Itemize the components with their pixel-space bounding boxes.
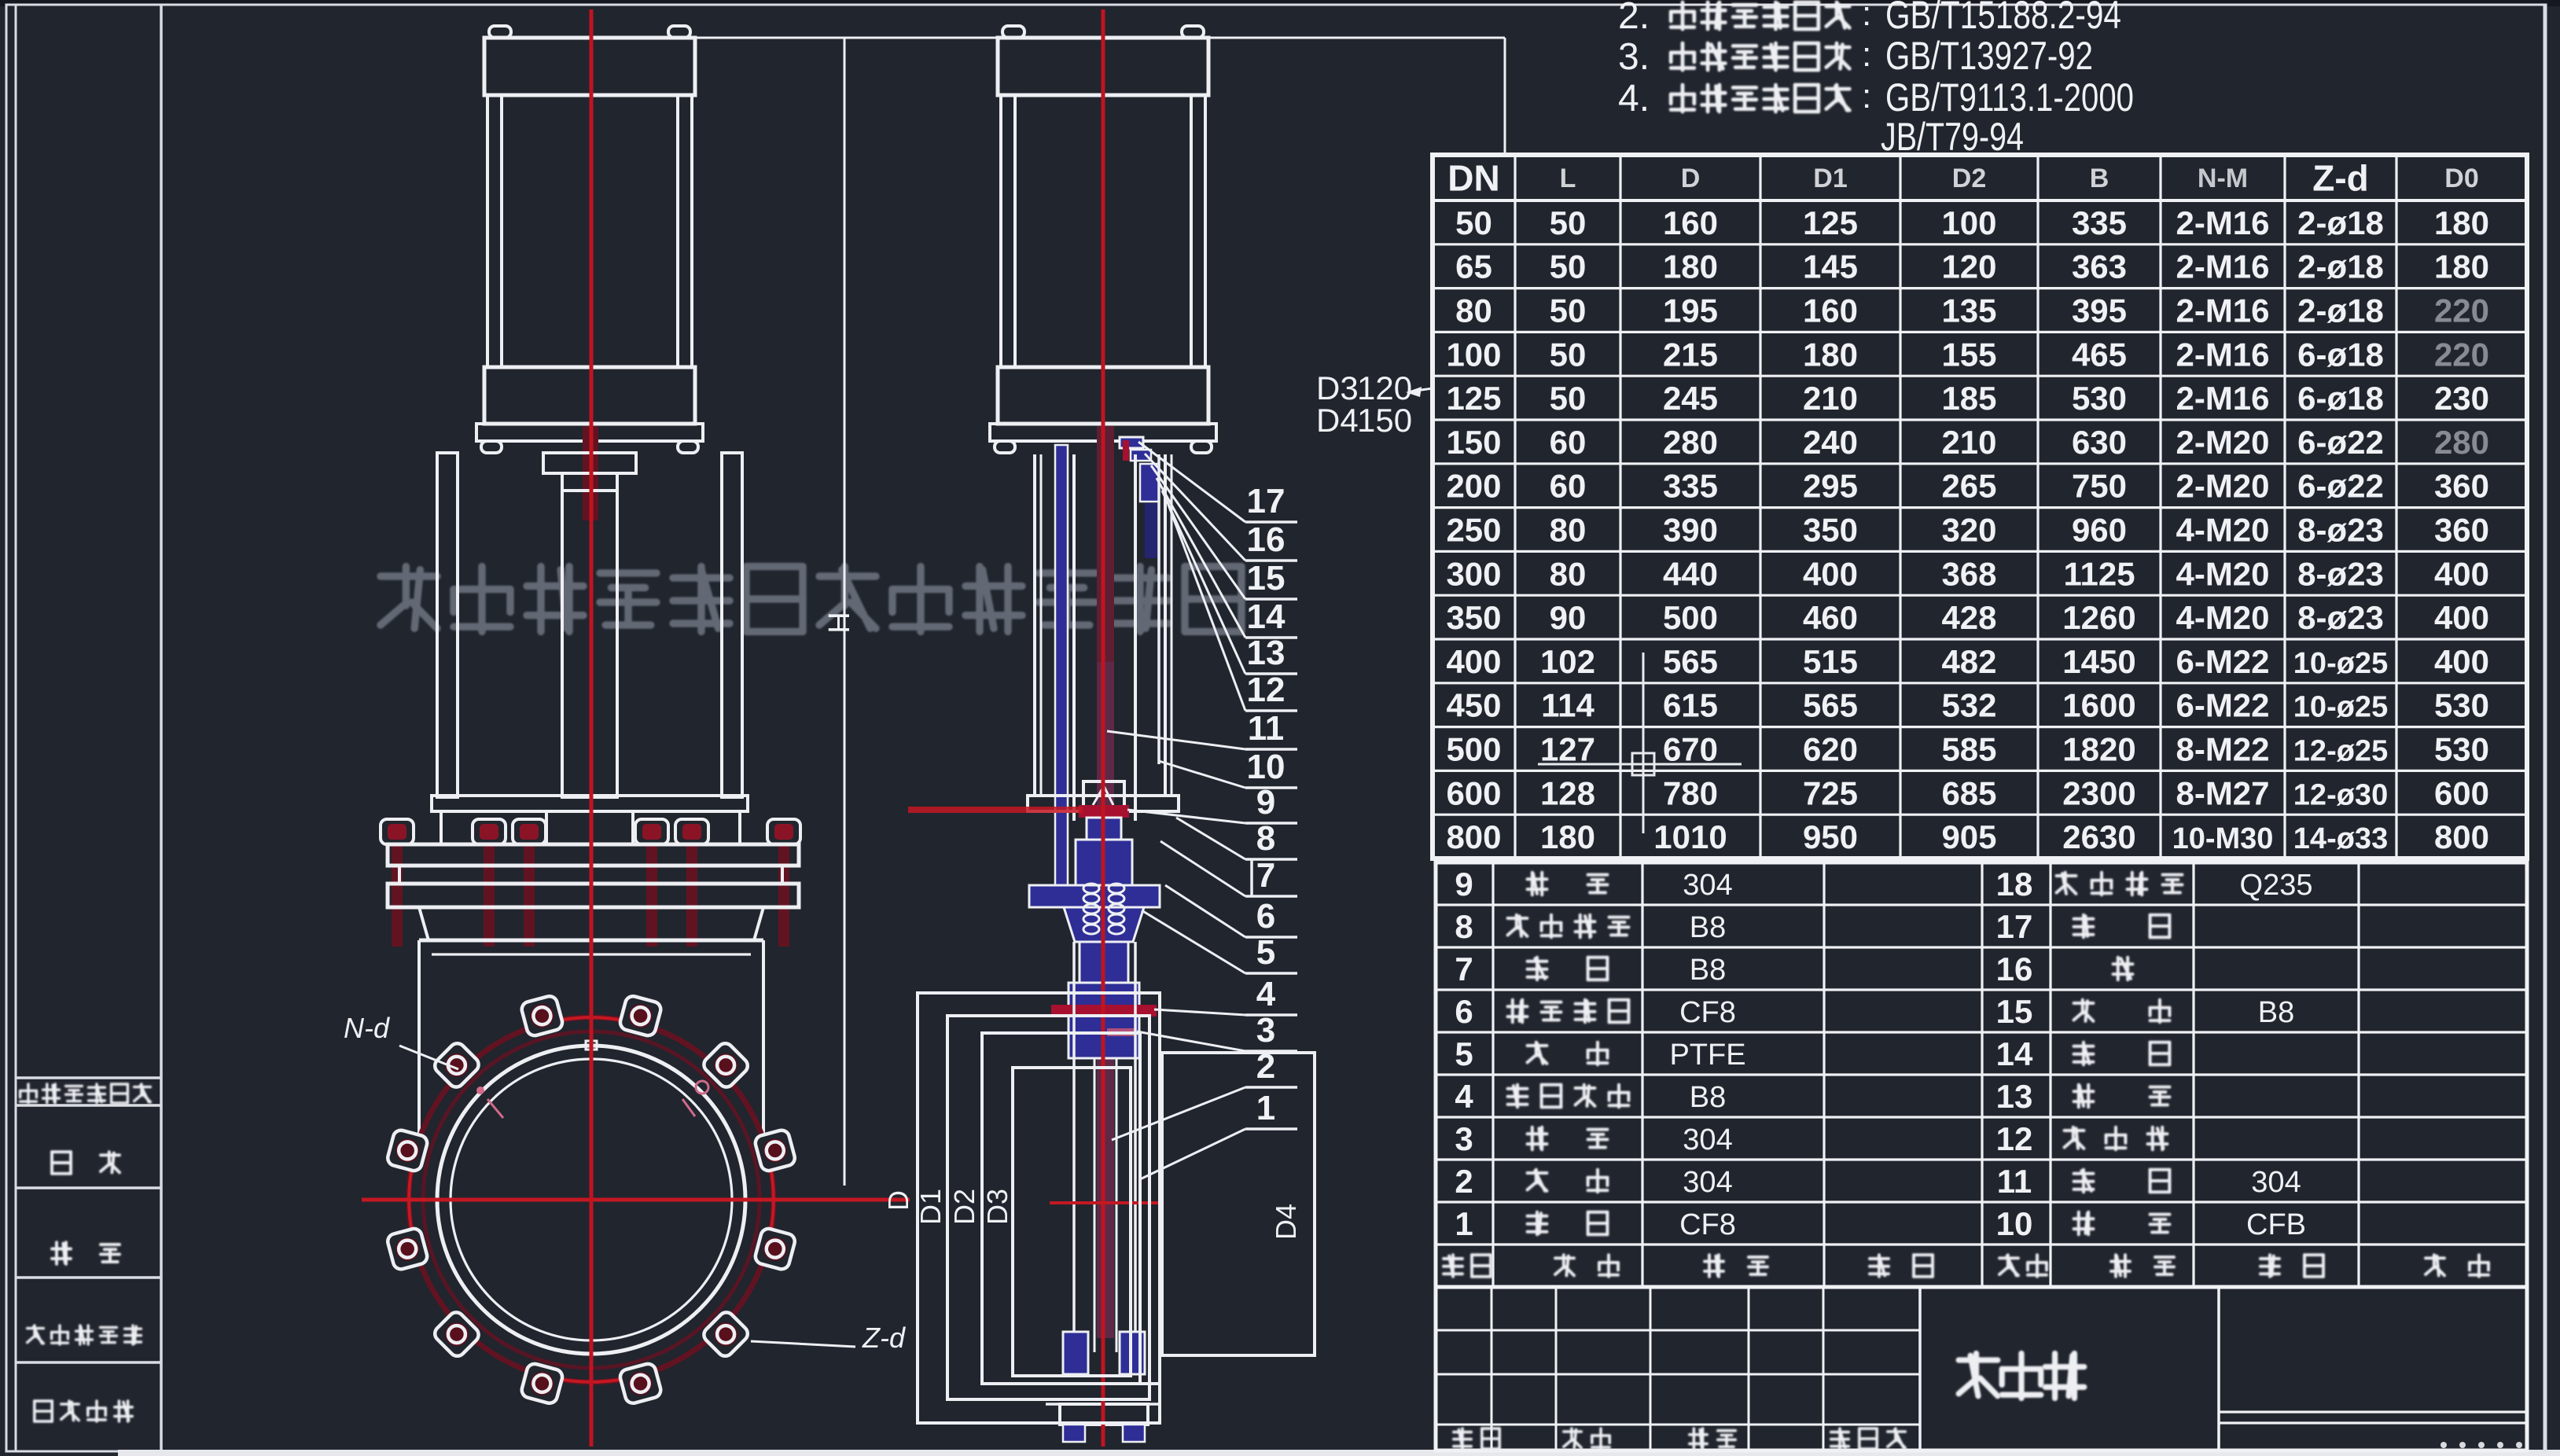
svg-text:400: 400 [1446, 643, 1501, 680]
svg-text:8-ø23: 8-ø23 [2297, 512, 2384, 549]
svg-text:350: 350 [1803, 512, 1858, 549]
svg-text:2-M16: 2-M16 [2176, 248, 2269, 285]
svg-text:220: 220 [2434, 292, 2489, 329]
svg-text:215: 215 [1663, 336, 1718, 373]
svg-text:265: 265 [1941, 468, 1996, 505]
svg-text:180: 180 [1540, 818, 1595, 855]
svg-text:1010: 1010 [1653, 818, 1727, 855]
svg-text:400: 400 [2434, 643, 2489, 680]
svg-text:2-M16: 2-M16 [2176, 292, 2269, 329]
svg-text:565: 565 [1663, 643, 1718, 680]
svg-text:135: 135 [1941, 292, 1996, 329]
svg-text:335: 335 [1663, 468, 1718, 505]
svg-text:4: 4 [1455, 1078, 1473, 1115]
svg-text:50: 50 [1550, 204, 1587, 241]
svg-text:685: 685 [1941, 774, 1996, 811]
svg-text:780: 780 [1663, 774, 1718, 811]
svg-text:D2: D2 [1952, 164, 1986, 193]
svg-text:10-ø25: 10-ø25 [2293, 691, 2388, 724]
svg-text:120: 120 [1941, 248, 1996, 285]
svg-text:Q235: Q235 [2240, 869, 2313, 902]
svg-text:1260: 1260 [2062, 599, 2135, 636]
svg-text:80: 80 [1455, 292, 1492, 329]
svg-text:1450: 1450 [2062, 643, 2135, 680]
svg-text:127: 127 [1540, 731, 1595, 768]
svg-text:6-M22: 6-M22 [2176, 643, 2269, 680]
svg-text:6-M22: 6-M22 [2176, 687, 2269, 724]
svg-text:80: 80 [1550, 512, 1587, 549]
svg-text:2-M16: 2-M16 [2176, 336, 2269, 373]
svg-text:18: 18 [1996, 866, 2033, 903]
svg-text:250: 250 [1446, 512, 1501, 549]
svg-text:2-ø18: 2-ø18 [2297, 248, 2384, 285]
svg-text:2300: 2300 [2062, 774, 2135, 811]
svg-text:145: 145 [1803, 248, 1858, 285]
svg-text:8-ø23: 8-ø23 [2297, 599, 2384, 636]
svg-text:D2: D2 [948, 1189, 980, 1225]
svg-text:1: 1 [1455, 1205, 1473, 1242]
svg-text:180: 180 [1663, 248, 1718, 285]
svg-text:600: 600 [1446, 774, 1501, 811]
svg-text:JB/T79-94: JB/T79-94 [1881, 115, 2024, 159]
svg-text:2-ø18: 2-ø18 [2297, 292, 2384, 329]
svg-text:50: 50 [1550, 380, 1587, 417]
svg-text:395: 395 [2072, 292, 2127, 329]
svg-text:180: 180 [1803, 336, 1858, 373]
svg-text:50: 50 [1550, 248, 1587, 285]
svg-text:363: 363 [2072, 248, 2127, 285]
svg-text:360: 360 [2434, 512, 2489, 549]
svg-text:8-M27: 8-M27 [2176, 774, 2269, 811]
svg-text:950: 950 [1803, 818, 1858, 855]
svg-text:800: 800 [1446, 818, 1501, 855]
svg-text:515: 515 [1803, 643, 1858, 680]
svg-text:114: 114 [1541, 687, 1594, 724]
svg-text:10-ø25: 10-ø25 [2293, 647, 2388, 680]
svg-text:B8: B8 [1690, 911, 1726, 944]
svg-text:155: 155 [1941, 336, 1996, 373]
svg-text:D4: D4 [1316, 402, 1359, 439]
svg-text:128: 128 [1540, 774, 1595, 811]
svg-text:160: 160 [1663, 204, 1718, 241]
svg-text:630: 630 [2072, 424, 2127, 461]
svg-text:750: 750 [2072, 468, 2127, 505]
svg-text:100: 100 [1941, 204, 1996, 241]
svg-text:7: 7 [1256, 856, 1275, 895]
svg-text:220: 220 [2434, 336, 2489, 373]
svg-text:4.: 4. [1618, 78, 1650, 119]
svg-text:60: 60 [1550, 468, 1587, 505]
svg-text:1820: 1820 [2062, 731, 2135, 768]
svg-text:102: 102 [1540, 643, 1595, 680]
svg-text:8-M22: 8-M22 [2176, 731, 2269, 768]
svg-text:8: 8 [1256, 819, 1275, 858]
svg-text:960: 960 [2072, 512, 2127, 549]
svg-text:GB/T9113.1-2000: GB/T9113.1-2000 [1885, 75, 2134, 119]
svg-text:4: 4 [1256, 975, 1276, 1013]
svg-text:D0: D0 [2444, 164, 2478, 193]
svg-text:4-M20: 4-M20 [2176, 555, 2269, 592]
svg-text:350: 350 [1446, 599, 1501, 636]
svg-text:50: 50 [1550, 292, 1587, 329]
svg-text:620: 620 [1803, 731, 1858, 768]
svg-text:H: H [823, 612, 856, 633]
svg-text:180: 180 [2434, 204, 2489, 241]
svg-text:6: 6 [1256, 897, 1275, 936]
svg-text:12: 12 [1247, 671, 1286, 709]
svg-text:585: 585 [1941, 731, 1996, 768]
svg-text:2-M20: 2-M20 [2176, 468, 2269, 505]
svg-text:2: 2 [1256, 1047, 1275, 1086]
svg-text:13: 13 [1996, 1078, 2033, 1115]
svg-text:670: 670 [1663, 731, 1718, 768]
svg-text:D: D [882, 1190, 914, 1211]
svg-text:240: 240 [1803, 424, 1858, 461]
svg-text:428: 428 [1941, 599, 1996, 636]
svg-text:565: 565 [1803, 687, 1858, 724]
svg-text:14: 14 [1247, 597, 1286, 636]
svg-text:Z-d: Z-d [862, 1322, 906, 1354]
svg-text:PTFE: PTFE [1669, 1039, 1745, 1072]
svg-text:125: 125 [1803, 204, 1858, 241]
svg-text:2630: 2630 [2062, 818, 2135, 855]
svg-text:465: 465 [2072, 336, 2127, 373]
svg-text:7: 7 [1455, 950, 1473, 987]
svg-text:12-ø25: 12-ø25 [2293, 735, 2388, 768]
svg-text:65: 65 [1455, 248, 1492, 285]
svg-text:304: 304 [2251, 1166, 2301, 1199]
svg-text:1125: 1125 [2063, 555, 2135, 592]
svg-text:80: 80 [1550, 555, 1587, 592]
svg-text:L: L [1560, 164, 1576, 193]
svg-text:300: 300 [1446, 555, 1501, 592]
svg-text:400: 400 [2434, 555, 2489, 592]
svg-text:100: 100 [1446, 336, 1501, 373]
svg-text:11: 11 [1248, 709, 1285, 748]
svg-text:5: 5 [1256, 933, 1275, 972]
svg-text:245: 245 [1663, 380, 1718, 417]
svg-text:185: 185 [1941, 380, 1996, 417]
svg-text:125: 125 [1446, 380, 1501, 417]
svg-text:3.: 3. [1618, 36, 1650, 78]
svg-text:210: 210 [1941, 424, 1996, 461]
svg-text:D3: D3 [981, 1189, 1013, 1225]
svg-text:905: 905 [1941, 818, 1996, 855]
svg-text:B8: B8 [1690, 1081, 1726, 1114]
svg-text:D: D [1681, 164, 1701, 193]
svg-text:150: 150 [1357, 402, 1412, 439]
svg-text:4-M20: 4-M20 [2176, 512, 2269, 549]
svg-text:368: 368 [1941, 555, 1996, 592]
svg-text:6-ø22: 6-ø22 [2297, 424, 2384, 461]
svg-text:320: 320 [1941, 512, 1996, 549]
svg-text::: : [1862, 35, 1871, 74]
svg-text:B8: B8 [1690, 954, 1726, 987]
svg-text:482: 482 [1941, 643, 1996, 680]
svg-text:160: 160 [1803, 292, 1858, 329]
svg-text:16: 16 [1996, 950, 2033, 987]
svg-text:D4: D4 [1270, 1204, 1302, 1240]
svg-text:10-M30: 10-M30 [2172, 822, 2274, 855]
svg-text:6: 6 [1455, 993, 1473, 1030]
svg-text:6-ø18: 6-ø18 [2297, 380, 2384, 417]
svg-text:11: 11 [1997, 1163, 2032, 1200]
svg-text:2-M16: 2-M16 [2176, 204, 2269, 241]
svg-text:GB/T13927-92: GB/T13927-92 [1885, 34, 2093, 78]
svg-text:N-M: N-M [2198, 164, 2248, 193]
svg-text:D3: D3 [1316, 370, 1359, 406]
svg-text:10: 10 [1247, 748, 1286, 786]
svg-text:50: 50 [1550, 336, 1587, 373]
svg-text:200: 200 [1446, 468, 1501, 505]
svg-text:90: 90 [1550, 599, 1587, 636]
svg-text:17: 17 [1996, 908, 2033, 945]
svg-text:13: 13 [1247, 634, 1286, 672]
svg-text::: : [1862, 77, 1871, 116]
svg-text:9: 9 [1455, 866, 1473, 903]
svg-text:12: 12 [1996, 1120, 2033, 1157]
svg-text:400: 400 [1803, 555, 1858, 592]
svg-text:1600: 1600 [2062, 687, 2135, 724]
svg-text:195: 195 [1663, 292, 1718, 329]
svg-text:600: 600 [2434, 774, 2489, 811]
svg-text:6-ø22: 6-ø22 [2297, 468, 2384, 505]
svg-text:5: 5 [1455, 1035, 1473, 1072]
svg-text:450: 450 [1446, 687, 1501, 724]
svg-text:60: 60 [1550, 424, 1587, 461]
svg-text:304: 304 [1683, 869, 1732, 902]
svg-text:210: 210 [1803, 380, 1858, 417]
svg-text:N-d: N-d [344, 1012, 390, 1044]
svg-text:16: 16 [1247, 520, 1286, 559]
svg-text:CFB: CFB [2246, 1208, 2306, 1241]
svg-text:2-ø18: 2-ø18 [2297, 204, 2384, 241]
svg-text:295: 295 [1803, 468, 1858, 505]
svg-text:8-ø23: 8-ø23 [2297, 555, 2384, 592]
svg-text:615: 615 [1663, 687, 1718, 724]
svg-text:15: 15 [1996, 993, 2033, 1030]
svg-text:230: 230 [2434, 380, 2489, 417]
svg-text:500: 500 [1446, 731, 1501, 768]
svg-text:17: 17 [1247, 482, 1286, 520]
svg-text:GB/T15188.2-94: GB/T15188.2-94 [1885, 0, 2121, 37]
svg-text:280: 280 [1663, 424, 1718, 461]
svg-text:D1: D1 [914, 1189, 947, 1225]
svg-text:CF8: CF8 [1679, 1208, 1736, 1241]
svg-text:440: 440 [1663, 555, 1718, 592]
svg-text:9: 9 [1256, 783, 1275, 822]
svg-text:2.: 2. [1618, 0, 1650, 37]
svg-text:15: 15 [1247, 559, 1286, 597]
svg-text:180: 180 [2434, 248, 2489, 285]
svg-text:120: 120 [1357, 370, 1412, 406]
svg-text:4-M20: 4-M20 [2176, 599, 2269, 636]
svg-text:150: 150 [1446, 424, 1501, 461]
svg-text:280: 280 [2434, 424, 2489, 461]
svg-text:B: B [2090, 164, 2109, 193]
svg-text:Z-d: Z-d [2312, 158, 2369, 199]
svg-text:14: 14 [1996, 1035, 2033, 1072]
svg-text:725: 725 [1803, 774, 1858, 811]
svg-text:10: 10 [1996, 1205, 2033, 1242]
svg-text:8: 8 [1455, 908, 1473, 945]
svg-text:800: 800 [2434, 818, 2489, 855]
svg-text:CF8: CF8 [1679, 996, 1736, 1029]
svg-text:12-ø30: 12-ø30 [2293, 778, 2388, 811]
svg-text:50: 50 [1455, 204, 1492, 241]
svg-text:DN: DN [1447, 158, 1499, 199]
svg-text:3: 3 [1455, 1120, 1473, 1157]
svg-text:460: 460 [1803, 599, 1858, 636]
svg-text:530: 530 [2434, 731, 2489, 768]
svg-text:14-ø33: 14-ø33 [2293, 822, 2388, 855]
svg-text:B8: B8 [2258, 996, 2294, 1029]
svg-text:D1: D1 [1813, 164, 1847, 193]
svg-text:1: 1 [1256, 1089, 1275, 1127]
svg-text:2: 2 [1455, 1163, 1473, 1200]
svg-text:335: 335 [2072, 204, 2127, 241]
svg-text:2-M20: 2-M20 [2176, 424, 2269, 461]
svg-text:3: 3 [1256, 1011, 1275, 1050]
svg-text:304: 304 [1683, 1123, 1732, 1156]
svg-text:532: 532 [1941, 687, 1996, 724]
svg-text::: : [1862, 0, 1871, 33]
svg-text:500: 500 [1663, 599, 1718, 636]
svg-text:304: 304 [1683, 1166, 1732, 1199]
svg-text:360: 360 [2434, 468, 2489, 505]
svg-text:390: 390 [1663, 512, 1718, 549]
svg-text:2-M16: 2-M16 [2176, 380, 2269, 417]
svg-text:530: 530 [2434, 687, 2489, 724]
svg-text:400: 400 [2434, 599, 2489, 636]
svg-text:6-ø18: 6-ø18 [2297, 336, 2384, 373]
svg-text:530: 530 [2072, 380, 2127, 417]
